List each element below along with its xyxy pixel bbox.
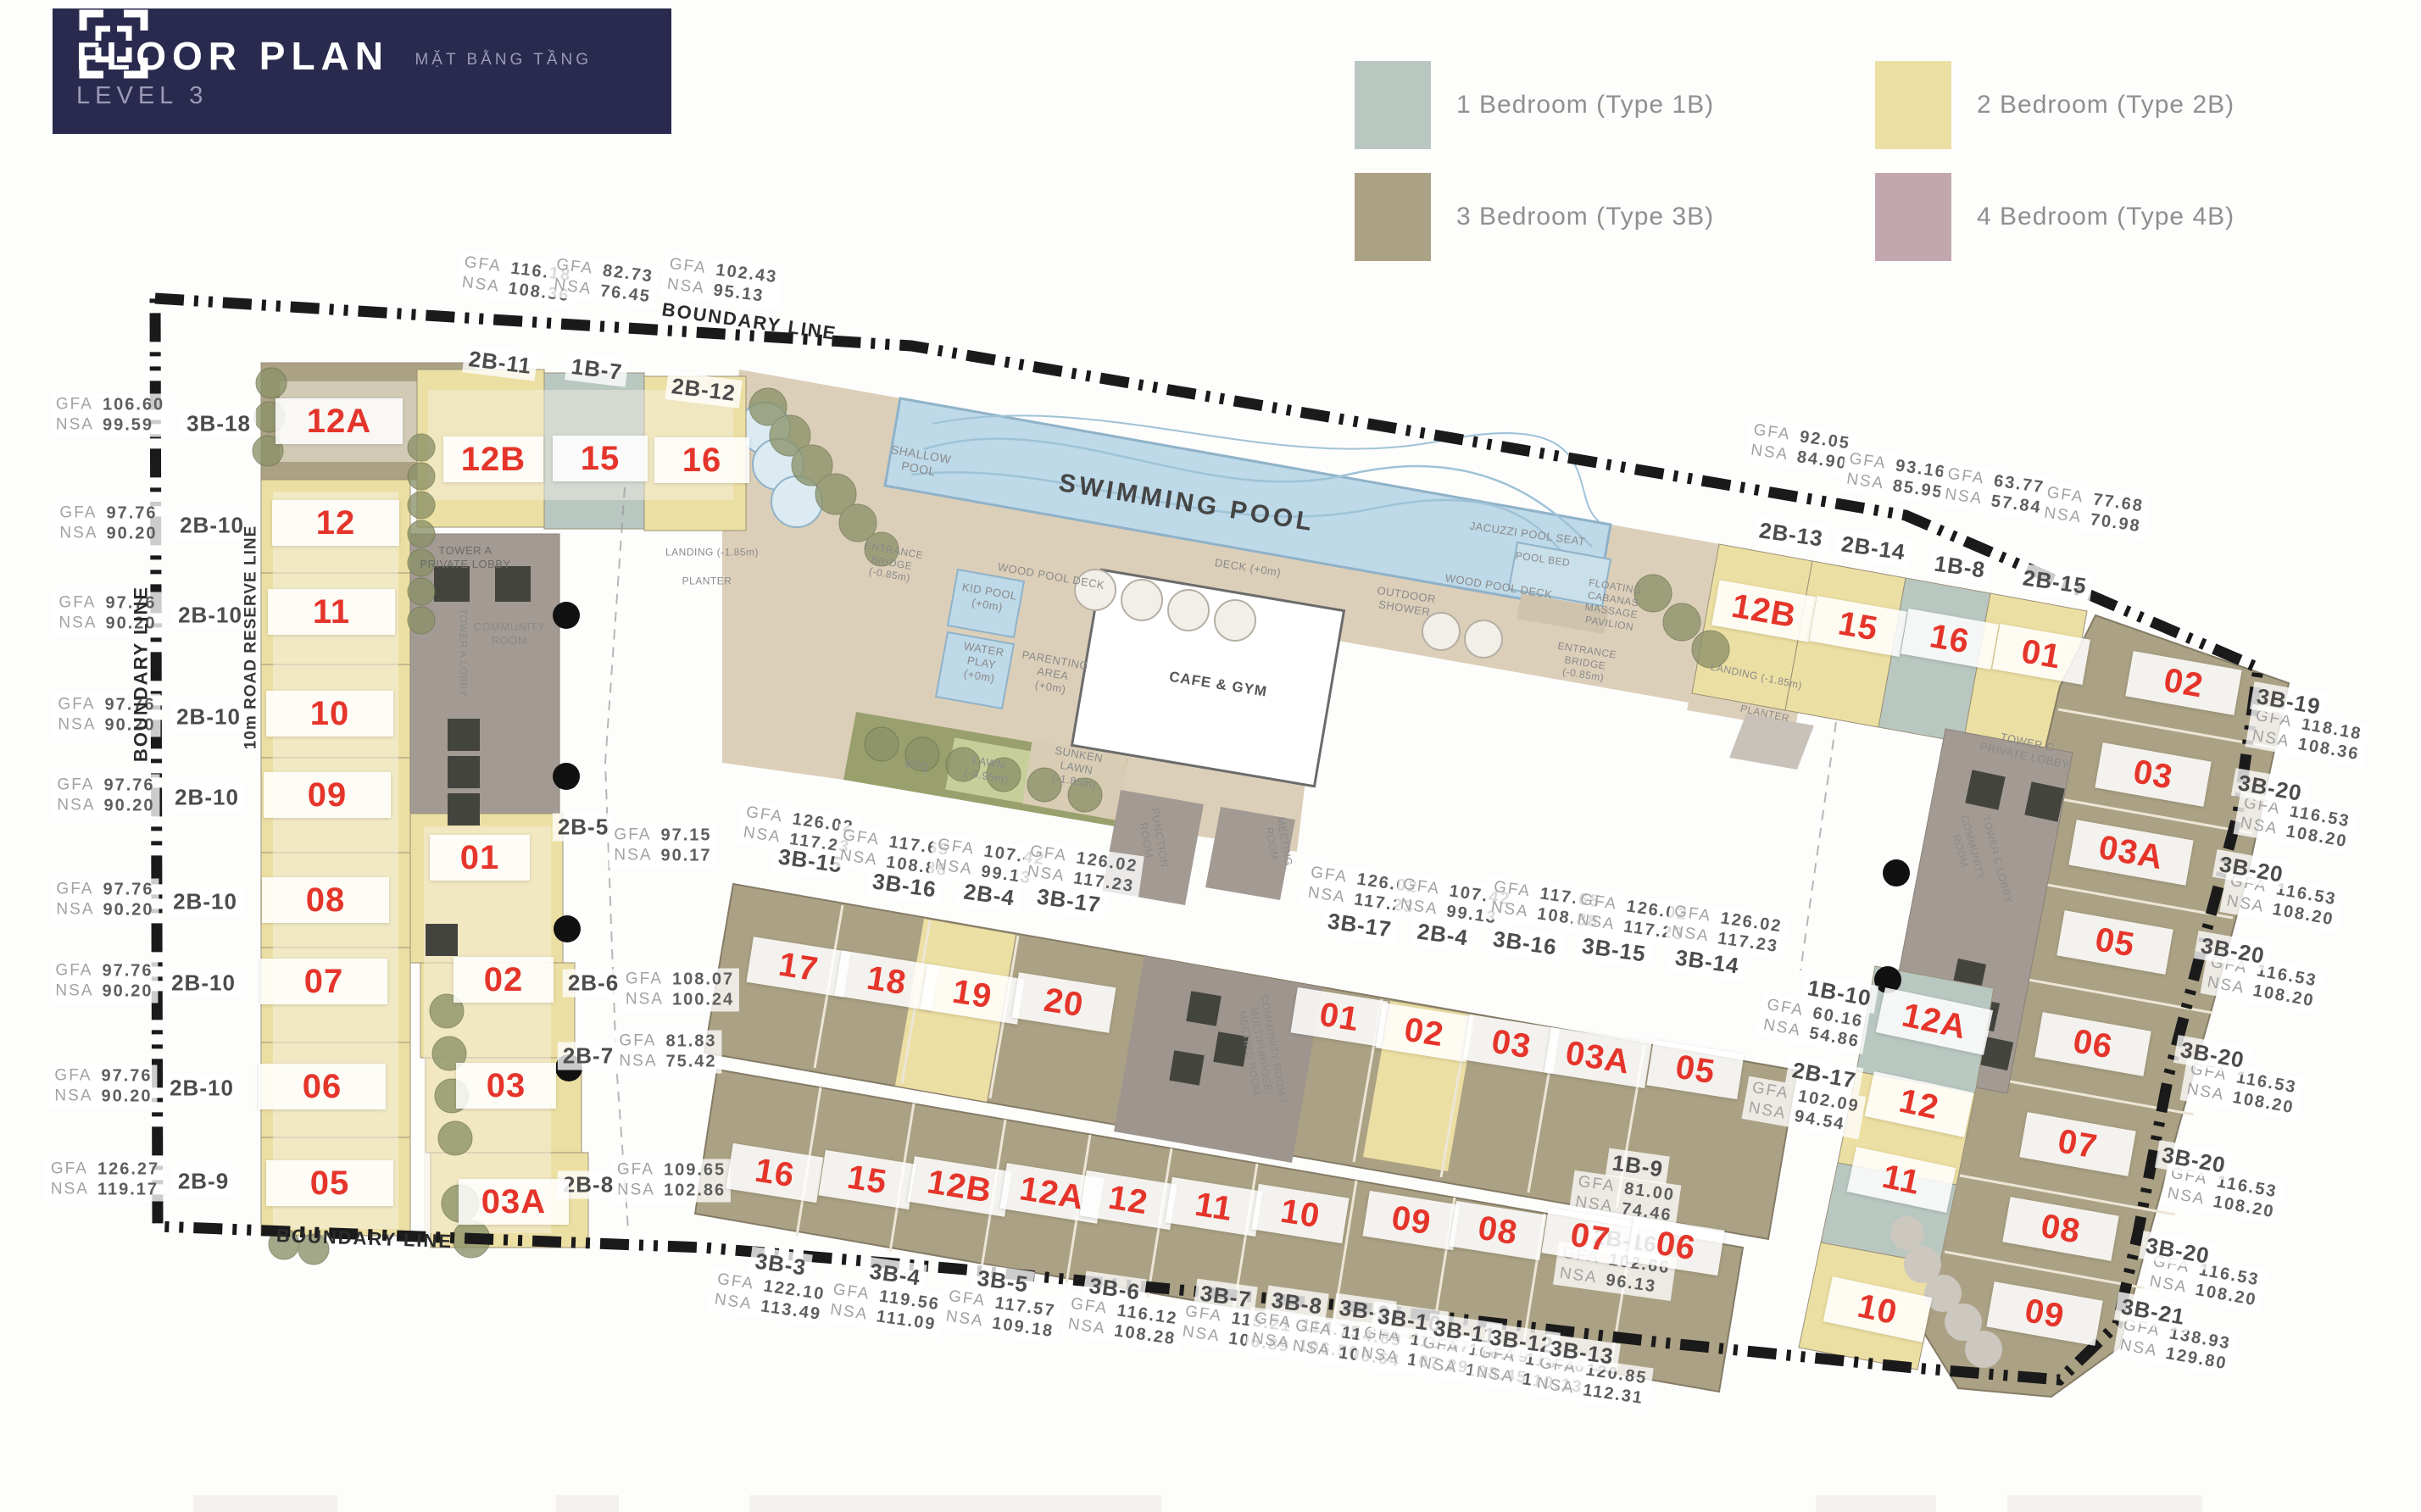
unit-chip-02[interactable]: 02 (454, 957, 554, 1003)
area-label: TOWER A PRIVATE LOBBY (420, 544, 510, 571)
gfa-key: NSA (829, 1301, 870, 1326)
unit-gfa-label: GFA77.68NSA70.98 (2037, 481, 2150, 539)
gfa-key: NSA (58, 716, 96, 736)
gfa-value: 97.76 (103, 881, 154, 900)
area-label: ENTRANCE BRIDGE (-0.85m) (1553, 640, 1617, 686)
unit-number: 17 (776, 945, 821, 989)
gfa-key: NSA (665, 275, 706, 299)
gfa-key: GFA (614, 826, 652, 846)
gfa-value: 97.76 (103, 962, 153, 981)
gfa-key: NSA (1306, 884, 1347, 909)
unit-number: 12B (1728, 586, 1799, 636)
unit-chip-03[interactable]: 03 (456, 1063, 556, 1109)
gfa-value: 97.76 (107, 504, 158, 524)
gfa-value: 90.20 (107, 525, 158, 544)
unit-chip-08[interactable]: 08 (262, 877, 389, 923)
unit-number: 15 (845, 1158, 890, 1202)
gfa-value: 90.20 (103, 901, 154, 920)
unit-number: 05 (1673, 1048, 1718, 1092)
unit-number: 02 (2161, 661, 2207, 705)
unit-chip-16[interactable]: 16 (654, 437, 749, 483)
gfa-key: GFA (51, 1160, 89, 1180)
unit-type-label: 2B-6 (563, 970, 624, 998)
area-label: DECK (+0m) (1214, 556, 1283, 580)
gfa-key: NSA (1399, 896, 1439, 920)
unit-number: 06 (2070, 1022, 2116, 1066)
gfa-value: 97.76 (104, 776, 155, 796)
unit-number: 15 (1835, 604, 1881, 648)
unit-number: 06 (303, 1068, 342, 1106)
unit-type-label: 1B-7 (565, 352, 629, 387)
gfa-value: 90.20 (103, 982, 153, 1002)
unit-chip-15[interactable]: 15 (1809, 596, 1907, 657)
plan-label-layer: GFA106.60NSA99.593B-18GFA97.76NSA90.202B… (0, 0, 2421, 1512)
gfa-key: GFA (57, 776, 95, 796)
unit-number: 15 (581, 440, 621, 478)
gfa-key: GFA (59, 504, 97, 524)
unit-number: 07 (2055, 1122, 2101, 1166)
unit-chip-01[interactable]: 01 (1992, 624, 2090, 685)
unit-number: 01 (460, 839, 500, 877)
unit-chip-09[interactable]: 09 (264, 772, 391, 818)
unit-gfa-label: GFA97.76NSA90.20 (52, 775, 159, 818)
unit-chip-16[interactable]: 16 (726, 1143, 823, 1203)
unit-chip-12B[interactable]: 12B (907, 1156, 1011, 1216)
gfa-value: 90.20 (102, 1087, 153, 1107)
unit-chip-12B[interactable]: 12B (443, 436, 543, 482)
unit-chip-09[interactable]: 09 (1362, 1191, 1460, 1250)
unit-chip-15[interactable]: 15 (553, 436, 648, 481)
gfa-key: NSA (1181, 1323, 1222, 1348)
gfa-key: NSA (626, 991, 664, 1010)
area-label: WOOD POOL DECK (997, 560, 1106, 592)
unit-chip-11[interactable]: 11 (1165, 1177, 1262, 1237)
unit-number: 12 (1106, 1178, 1151, 1222)
gfa-key: NSA (59, 525, 97, 544)
gfa-value: 90.20 (104, 797, 155, 816)
unit-chip-03A[interactable]: 03A (459, 1179, 569, 1225)
unit-gfa-label: GFA92.05NSA84.90 (1744, 419, 1856, 476)
unit-chip-06[interactable]: 06 (259, 1064, 386, 1109)
unit-number: 12 (1896, 1081, 1943, 1127)
unit-gfa-label: GFA97.76NSA90.20 (49, 1065, 157, 1109)
area-label: LANDING (-1.85m) (1710, 660, 1804, 692)
unit-type-label: 2B-12 (665, 371, 742, 408)
area-label: FLOATING CABANAS MASSAGE PAVILION (1582, 576, 1642, 634)
unit-type-label: 3B-16 (1486, 925, 1564, 963)
unit-chip-01[interactable]: 01 (1290, 987, 1388, 1047)
gfa-key: NSA (1535, 1375, 1576, 1399)
area-label: CAFE & GYM (1168, 669, 1269, 702)
area-label: OUTDOOR SHOWER (1374, 584, 1437, 620)
unit-number: 05 (310, 1165, 350, 1203)
unit-number: 03 (487, 1067, 526, 1105)
area-label: BOUNDARY LINE (131, 586, 153, 762)
unit-number: 03A (481, 1183, 546, 1221)
unit-number: 03A (2095, 828, 2166, 877)
unit-type-label: 2B-10 (170, 784, 244, 812)
unit-type-label: 2B-10 (166, 970, 241, 998)
area-label: COMMUNITY ROOM / MULTIPURPOSE/ MEETING R… (1233, 994, 1289, 1109)
gfa-key: NSA (54, 1087, 92, 1107)
unit-chip-11[interactable]: 11 (1847, 1147, 1956, 1213)
unit-number: 01 (1317, 995, 1362, 1039)
unit-chip-05[interactable]: 05 (1646, 1040, 1744, 1099)
area-label: BBQ (904, 757, 930, 775)
unit-chip-12A[interactable]: 12A (275, 398, 403, 444)
gfa-value: 97.15 (661, 826, 712, 846)
unit-number: 12B (461, 441, 526, 479)
unit-type-label: 1B-8 (1928, 549, 1992, 586)
unit-type-label: 2B-10 (173, 602, 248, 630)
unit-chip-12A[interactable]: 12A (1876, 987, 1993, 1055)
unit-chip-05[interactable]: 05 (2056, 910, 2173, 975)
gfa-value: 106.60 (103, 396, 164, 415)
unit-gfa-label: GFA97.76NSA90.20 (54, 503, 162, 546)
unit-number: 16 (682, 442, 722, 480)
unit-chip-02[interactable]: 02 (2125, 651, 2241, 715)
gfa-key: NSA (933, 856, 974, 881)
gfa-key: NSA (1558, 1265, 1599, 1289)
gfa-key: NSA (55, 982, 93, 1002)
unit-number: 02 (484, 961, 524, 999)
area-label: SWIMMING POOL (1056, 468, 1316, 539)
unit-type-label: 2B-7 (558, 1042, 619, 1070)
unit-number: 05 (2092, 920, 2138, 964)
gfa-value: 97.76 (102, 1067, 153, 1087)
unit-number: 12A (1899, 996, 1970, 1047)
unit-chip-20[interactable]: 20 (1011, 972, 1116, 1032)
area-label: MEETING ROOM (1262, 816, 1295, 869)
unit-chip-02[interactable]: 02 (1375, 1003, 1472, 1062)
area-label: COMMUNITY ROOM (474, 620, 546, 648)
unit-number: 12A (307, 403, 371, 441)
unit-number: 19 (950, 972, 995, 1016)
gfa-key: NSA (51, 1181, 89, 1200)
unit-number: 03A (1563, 1034, 1633, 1081)
gfa-key: GFA (58, 696, 96, 715)
unit-chip-11[interactable]: 11 (268, 589, 395, 635)
unit-chip-06[interactable]: 06 (2034, 1012, 2151, 1076)
unit-gfa-label: GFA109.65NSA102.86 (612, 1159, 731, 1203)
unit-number: 08 (1476, 1209, 1521, 1253)
area-label: WATER PLAY (+0m) (958, 639, 1005, 686)
unit-type-label: 2B-11 (462, 344, 538, 381)
gfa-key: NSA (553, 275, 593, 299)
area-label: PLANTER (682, 575, 732, 588)
unit-chip-10[interactable]: 10 (1251, 1184, 1349, 1243)
gfa-value: 109.65 (664, 1161, 726, 1181)
gfa-value: 119.17 (97, 1181, 159, 1200)
unit-number: 08 (306, 881, 346, 920)
gfa-key: NSA (460, 274, 501, 297)
unit-chip-15[interactable]: 15 (818, 1150, 916, 1209)
gfa-key: NSA (56, 416, 94, 436)
gfa-key: GFA (54, 1067, 92, 1087)
area-label: JACUZZI POOL SEAT (1469, 520, 1587, 549)
unit-number: 10 (310, 695, 350, 733)
gfa-key: NSA (1291, 1337, 1332, 1362)
area-label: SHALLOW POOL (888, 442, 953, 481)
area-label: BOUNDARY LINE (276, 1225, 454, 1254)
unit-chip-03A[interactable]: 03A (2068, 820, 2193, 885)
unit-chip-08[interactable]: 08 (1449, 1201, 1546, 1260)
gfa-key: NSA (614, 847, 652, 866)
unit-type-label: 2B-10 (164, 1075, 239, 1103)
gfa-key: GFA (56, 396, 94, 415)
gfa-key: GFA (56, 881, 94, 900)
unit-gfa-label: GFA63.77NSA57.84 (1938, 463, 2051, 520)
gfa-key: NSA (713, 1291, 754, 1315)
area-label: POOL BED (1515, 549, 1571, 570)
gfa-key: GFA (617, 1161, 655, 1181)
unit-number: 10 (1855, 1287, 1901, 1332)
unit-number: 03 (1489, 1022, 1534, 1066)
gfa-key: GFA (55, 962, 93, 981)
unit-number: 07 (1568, 1215, 1613, 1259)
unit-gfa-label: GFA97.15NSA90.17 (609, 825, 716, 868)
gfa-value: 75.42 (666, 1053, 717, 1072)
unit-number: 10 (1278, 1192, 1323, 1236)
area-label: PARENTING AREA (+0m) (1016, 648, 1089, 700)
unit-number: 20 (1042, 981, 1087, 1025)
unit-number: 12 (316, 504, 356, 542)
gfa-key: NSA (57, 797, 95, 816)
area-label: ENTRANCE BRIDGE (-0.85m) (860, 539, 925, 586)
area-label: TOWER C PRIVATE LOBBY (1979, 726, 2073, 771)
unit-gfa-label: GFA81.83NSA75.42 (614, 1031, 721, 1074)
gfa-value: 99.59 (103, 416, 164, 436)
unit-number: 09 (2022, 1292, 2068, 1336)
gfa-key: NSA (2043, 503, 2084, 528)
gfa-key: NSA (58, 614, 97, 634)
unit-type-label: 3B-18 (181, 410, 256, 438)
unit-gfa-label: GFA106.60NSA99.59 (51, 394, 170, 437)
unit-number: 18 (865, 959, 910, 1003)
unit-type-label: 2B-10 (171, 703, 246, 731)
gfa-value: 102.86 (664, 1181, 726, 1201)
area-label: TOWER A LOBBY (457, 609, 470, 697)
unit-chip-08[interactable]: 08 (2002, 1197, 2118, 1261)
unit-number: 09 (1389, 1198, 1434, 1242)
unit-chip-03A[interactable]: 03A (1544, 1027, 1652, 1088)
gfa-key: NSA (617, 1181, 655, 1201)
unit-chip-03[interactable]: 03 (2095, 742, 2211, 807)
area-label: LAWN (-0.95m) (963, 753, 1012, 787)
unit-chip-10[interactable]: 10 (266, 691, 393, 737)
gfa-key: NSA (1845, 470, 1886, 494)
unit-number: 12B (925, 1163, 994, 1210)
unit-number: 16 (1927, 617, 1973, 661)
unit-number: 08 (2038, 1207, 2084, 1251)
gfa-key: NSA (1944, 485, 1984, 509)
gfa-key: GFA (619, 1032, 657, 1052)
gfa-value: 108.07 (672, 970, 734, 990)
unit-chip-07[interactable]: 07 (260, 959, 387, 1004)
unit-type-label: 2B-10 (168, 888, 242, 916)
unit-number: 07 (304, 963, 344, 1001)
gfa-key: NSA (1066, 1315, 1107, 1340)
area-label: KID POOL (+0m) (959, 581, 1018, 617)
unit-number: 12A (1017, 1170, 1087, 1217)
gfa-key: NSA (1489, 898, 1530, 923)
unit-chip-12B[interactable]: 12B (1711, 580, 1817, 642)
unit-chip-12[interactable]: 12 (272, 500, 399, 546)
gfa-value: 100.24 (672, 991, 734, 1010)
unit-number: 03 (2130, 753, 2176, 797)
floor-plan-page: FLOOR PLAN MẶT BẰNG TẦNG LEVEL 3 1 Bedro… (0, 0, 2421, 1512)
unit-number: 11 (313, 593, 350, 631)
gfa-key: NSA (56, 901, 94, 920)
gfa-key: NSA (1250, 1330, 1291, 1354)
unit-type-label: 2B-10 (175, 512, 249, 540)
gfa-key: NSA (1418, 1354, 1459, 1379)
gfa-key: GFA (58, 594, 97, 614)
gfa-value: 81.83 (666, 1032, 717, 1052)
gfa-value: 90.17 (661, 847, 712, 866)
unit-chip-01[interactable]: 01 (430, 835, 530, 881)
unit-type-label: 2B-9 (173, 1168, 234, 1196)
unit-number: 02 (1402, 1010, 1447, 1054)
unit-number: 09 (308, 776, 348, 814)
unit-chip-09[interactable]: 09 (1986, 1281, 2102, 1346)
area-label: 10m ROAD RESERVE LINE (241, 525, 260, 750)
unit-number: 16 (753, 1151, 798, 1195)
unit-chip-12[interactable]: 12 (1865, 1071, 1974, 1137)
unit-number: 06 (1654, 1224, 1699, 1268)
area-label: PLANTER (1739, 703, 1791, 725)
gfa-key: NSA (1475, 1364, 1516, 1388)
area-label: LANDING (-1.85m) (665, 547, 759, 559)
unit-gfa-label: GFA108.07NSA100.24 (621, 969, 739, 1012)
unit-gfa-label: GFA126.27NSA119.17 (46, 1159, 164, 1202)
gfa-key: GFA (626, 970, 664, 990)
gfa-key: NSA (619, 1053, 657, 1072)
gfa-value: 126.27 (97, 1160, 159, 1180)
unit-chip-07[interactable]: 07 (2019, 1112, 2135, 1176)
unit-number: 11 (1879, 1157, 1924, 1202)
unit-chip-16[interactable]: 16 (1901, 609, 1999, 670)
unit-type-label: 2B-14 (1834, 530, 1912, 568)
unit-chip-10[interactable]: 10 (1823, 1276, 1933, 1342)
gfa-key: NSA (944, 1308, 985, 1332)
gfa-key: NSA (1360, 1344, 1400, 1369)
unit-chip-05[interactable]: 05 (266, 1160, 393, 1206)
unit-number: 01 (2018, 632, 2064, 676)
area-label: SUNKEN LAWN (-1.85m) (1049, 744, 1105, 792)
unit-gfa-label: GFA93.16NSA85.95 (1839, 447, 1952, 505)
unit-gfa-label: GFA97.76NSA90.20 (50, 960, 158, 1003)
unit-type-label: 2B-15 (2016, 564, 2094, 602)
gfa-key: NSA (1750, 441, 1790, 465)
area-label: WOOD POOL DECK (1444, 571, 1554, 602)
unit-type-label: 2B-5 (553, 814, 614, 842)
unit-gfa-label: GFA97.76NSA90.20 (51, 879, 159, 922)
unit-number: 11 (1193, 1185, 1236, 1228)
unit-chip-19[interactable]: 19 (920, 964, 1024, 1024)
unit-type-label: 2B-13 (1752, 516, 1830, 554)
area-label: TOWER C LOBBY (1979, 814, 2015, 904)
